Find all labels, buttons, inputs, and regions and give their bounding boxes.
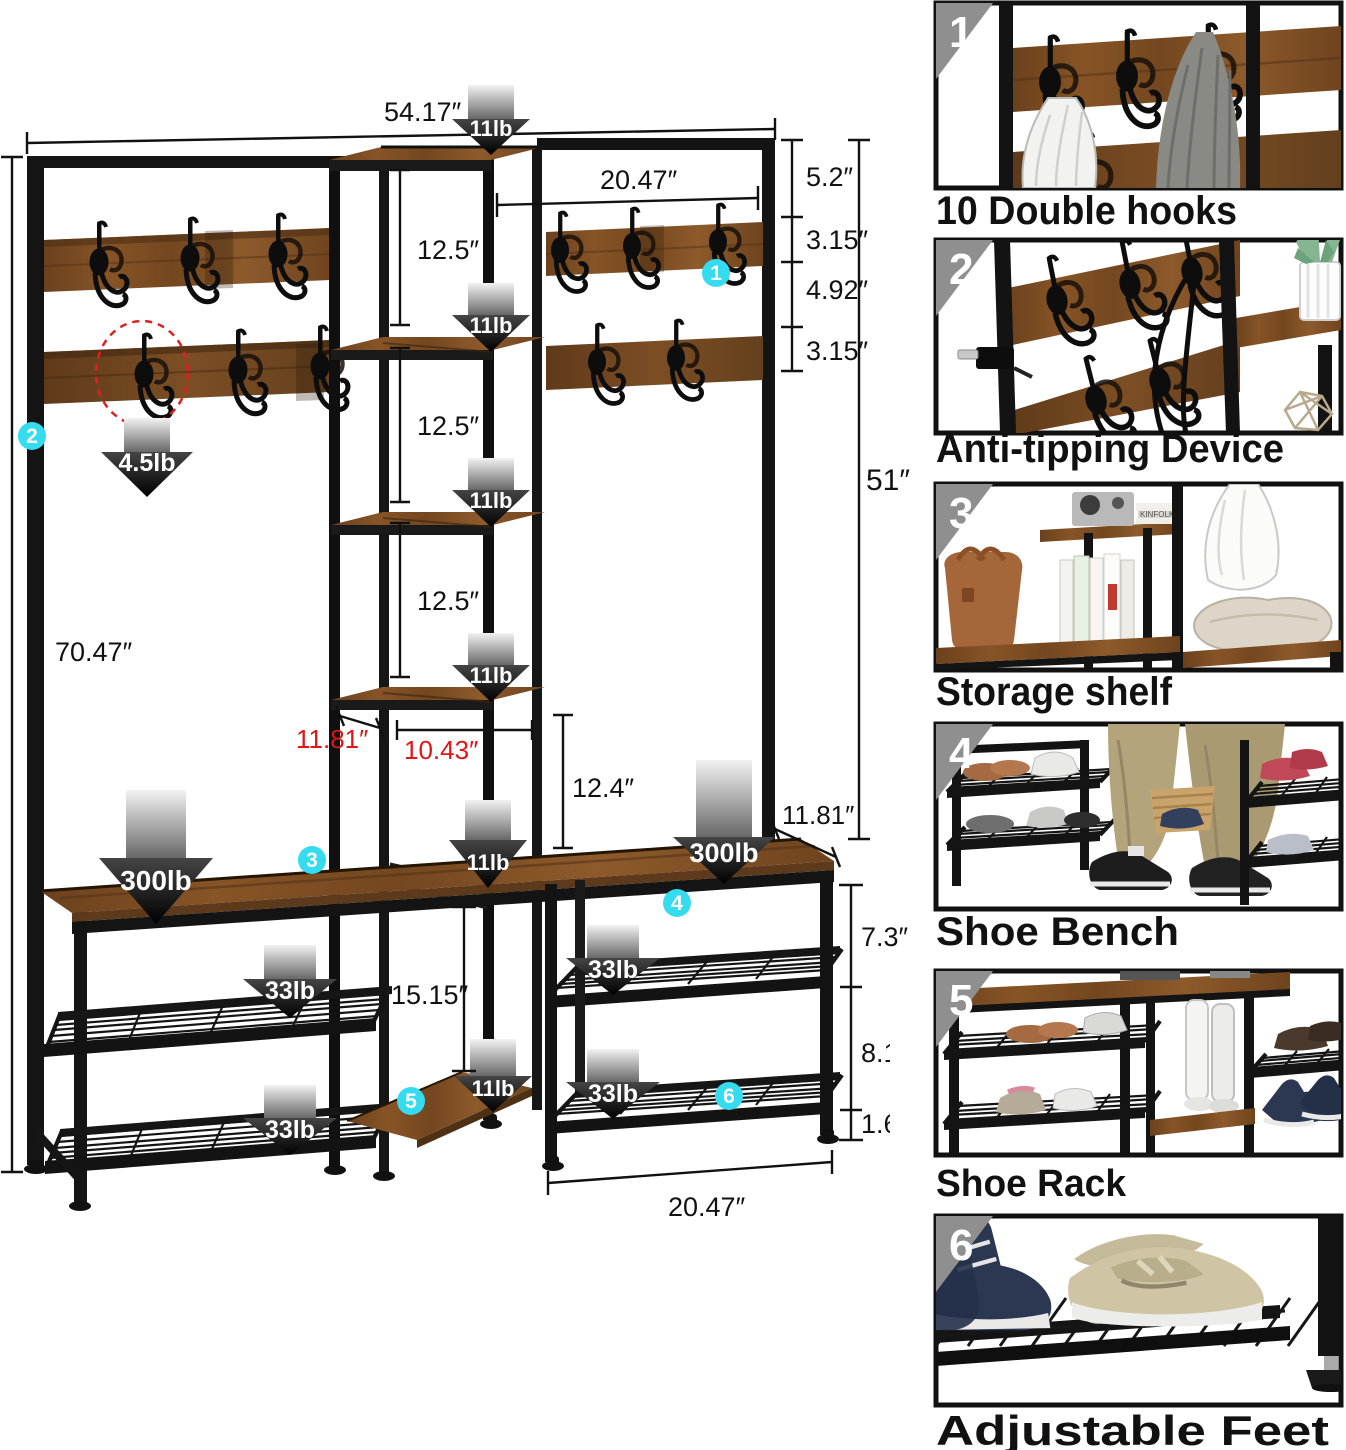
svg-text:1: 1 (949, 8, 973, 57)
svg-text:20.47″: 20.47″ (668, 1192, 746, 1222)
svg-text:7.3″: 7.3″ (861, 922, 909, 952)
svg-text:12.5″: 12.5″ (417, 235, 480, 265)
svg-text:51″: 51″ (866, 464, 910, 497)
svg-text:12.5″: 12.5″ (417, 586, 480, 616)
svg-text:11.81″: 11.81″ (296, 724, 368, 754)
svg-text:Anti-tipping Device: Anti-tipping Device (936, 427, 1284, 471)
svg-text:5: 5 (949, 976, 973, 1025)
svg-text:Shoe Bench: Shoe Bench (936, 910, 1179, 954)
svg-text:4.5lb: 4.5lb (119, 449, 176, 477)
svg-text:11lb: 11lb (470, 116, 513, 141)
svg-text:33lb: 33lb (265, 977, 315, 1005)
svg-text:11lb: 11lb (470, 488, 513, 513)
svg-text:4: 4 (949, 729, 974, 778)
svg-text:Shoe Rack: Shoe Rack (936, 1163, 1127, 1205)
svg-text:12.5″: 12.5″ (417, 411, 480, 441)
svg-text:33lb: 33lb (588, 1080, 638, 1108)
svg-text:2: 2 (26, 425, 38, 448)
svg-text:300lb: 300lb (120, 865, 192, 896)
svg-text:300lb: 300lb (689, 838, 758, 868)
svg-text:Adjustable Feet: Adjustable Feet (936, 1407, 1329, 1450)
svg-text:33lb: 33lb (265, 1116, 315, 1144)
svg-text:15.15″: 15.15″ (391, 980, 469, 1010)
svg-text:11lb: 11lb (470, 313, 513, 338)
svg-text:5: 5 (405, 1090, 417, 1113)
svg-text:2: 2 (949, 245, 973, 294)
svg-text:70.47″: 70.47″ (55, 637, 133, 667)
svg-text:Storage shelf: Storage shelf (936, 670, 1173, 714)
svg-text:3: 3 (306, 849, 318, 872)
svg-text:3: 3 (949, 489, 973, 538)
svg-text:11lb: 11lb (467, 850, 510, 875)
svg-text:KINFOLK: KINFOLK (1140, 510, 1175, 519)
svg-text:4: 4 (671, 892, 683, 915)
svg-text:54.17″: 54.17″ (384, 97, 462, 127)
svg-text:6: 6 (949, 1221, 973, 1270)
svg-text:5.2″: 5.2″ (806, 162, 854, 192)
svg-text:10.43″: 10.43″ (404, 735, 478, 765)
svg-text:11lb: 11lb (472, 1076, 515, 1101)
svg-text:1: 1 (710, 262, 722, 285)
svg-text:6: 6 (723, 1085, 735, 1108)
svg-text:11.81″: 11.81″ (782, 800, 854, 830)
svg-text:33lb: 33lb (588, 956, 638, 984)
svg-text:10 Double hooks: 10 Double hooks (936, 189, 1237, 233)
svg-text:12.4″: 12.4″ (572, 773, 635, 803)
svg-text:11lb: 11lb (470, 663, 513, 688)
svg-text:20.47″: 20.47″ (600, 165, 678, 195)
